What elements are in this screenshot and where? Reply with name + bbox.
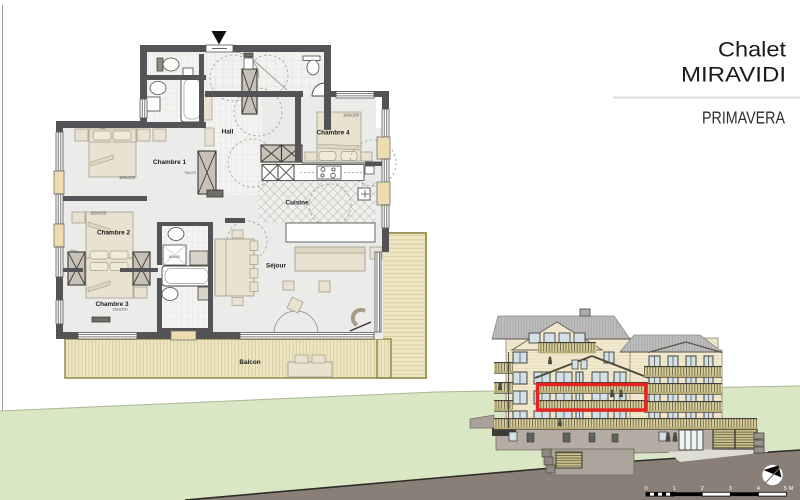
svg-text:Chambre 1: Chambre 1	[153, 159, 186, 166]
svg-text:5 M: 5 M	[784, 486, 794, 492]
svg-text:Séjour: Séjour	[266, 263, 286, 270]
svg-text:75x170: 75x170	[184, 171, 196, 175]
svg-text:0: 0	[644, 486, 647, 492]
svg-text:Chambre 2: Chambre 2	[97, 230, 130, 237]
svg-text:Cuisine: Cuisine	[285, 200, 309, 207]
svg-text:3: 3	[729, 486, 732, 492]
svg-text:MIRAVIDI: MIRAVIDI	[681, 63, 786, 87]
svg-text:160x190: 160x190	[343, 113, 360, 118]
svg-text:160x200: 160x200	[119, 175, 136, 180]
svg-text:160x200: 160x200	[90, 211, 107, 216]
svg-text:PRIMAVERA: PRIMAVERA	[702, 108, 785, 128]
svg-text:Chambre 4: Chambre 4	[316, 130, 349, 137]
svg-text:Hall: Hall	[222, 129, 234, 136]
svg-text:160x200: 160x200	[112, 307, 128, 312]
svg-text:2: 2	[701, 486, 704, 492]
svg-text:Balcon: Balcon	[239, 359, 260, 366]
svg-text:80x80: 80x80	[169, 254, 181, 259]
svg-text:Chalet: Chalet	[718, 38, 786, 62]
svg-text:1: 1	[672, 486, 675, 492]
